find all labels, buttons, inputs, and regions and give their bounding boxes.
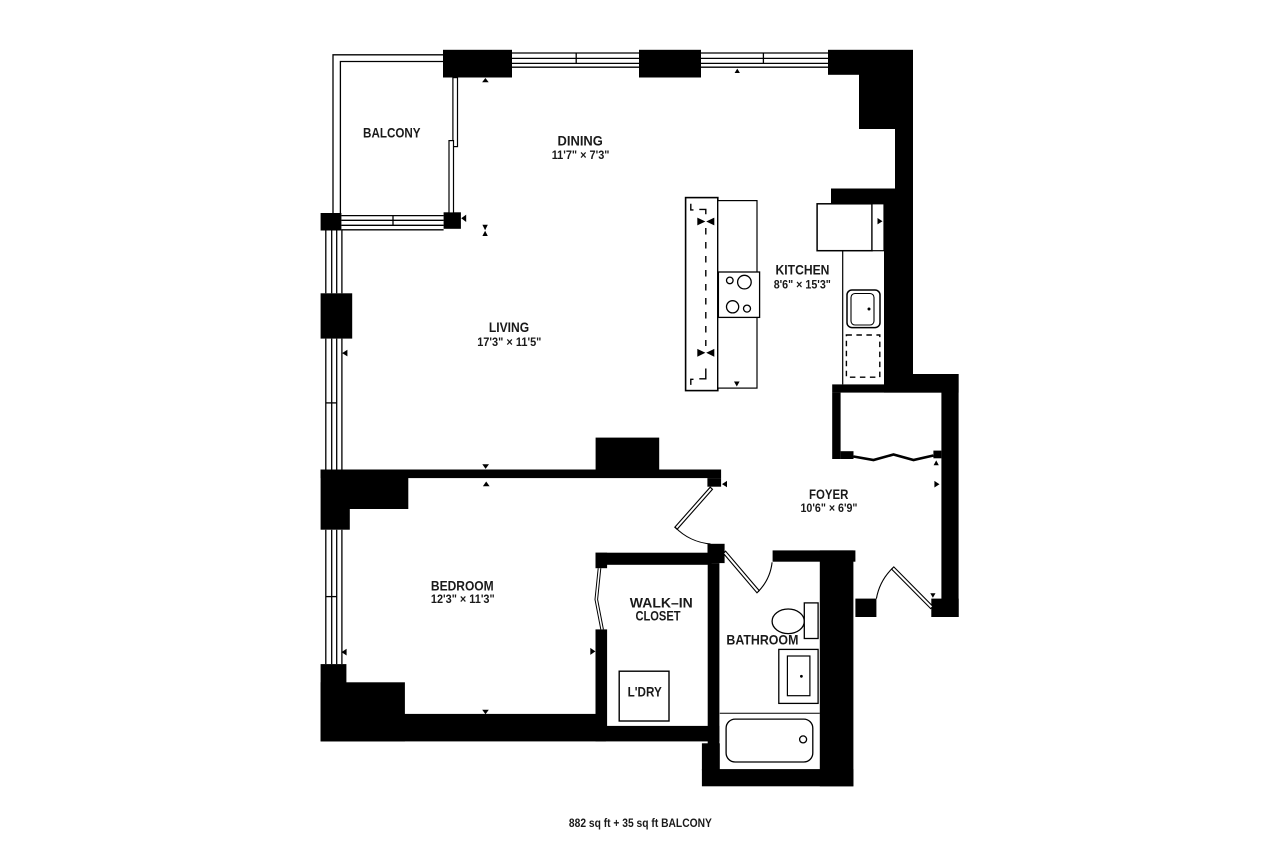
svg-text:DINING: DINING [558,133,603,149]
svg-text:882 sq ft + 35 sq ft BALCONY: 882 sq ft + 35 sq ft BALCONY [569,816,712,830]
svg-text:BATHROOM: BATHROOM [726,631,798,647]
svg-text:CLOSET: CLOSET [635,608,680,624]
svg-text:FOYER: FOYER [809,486,848,502]
svg-text:LIVING: LIVING [489,319,529,335]
svg-text:BEDROOM: BEDROOM [431,577,494,593]
svg-text:11'7" × 7'3": 11'7" × 7'3" [552,148,610,162]
svg-text:17'3" × 11'5": 17'3" × 11'5" [477,335,541,349]
svg-text:L'DRY: L'DRY [628,684,663,700]
svg-text:12'3" × 11'3": 12'3" × 11'3" [431,592,495,606]
svg-text:10'6" × 6'9": 10'6" × 6'9" [801,501,858,515]
svg-text:8'6" × 15'3": 8'6" × 15'3" [774,277,831,291]
svg-text:BALCONY: BALCONY [363,124,421,140]
svg-text:KITCHEN: KITCHEN [776,262,830,278]
